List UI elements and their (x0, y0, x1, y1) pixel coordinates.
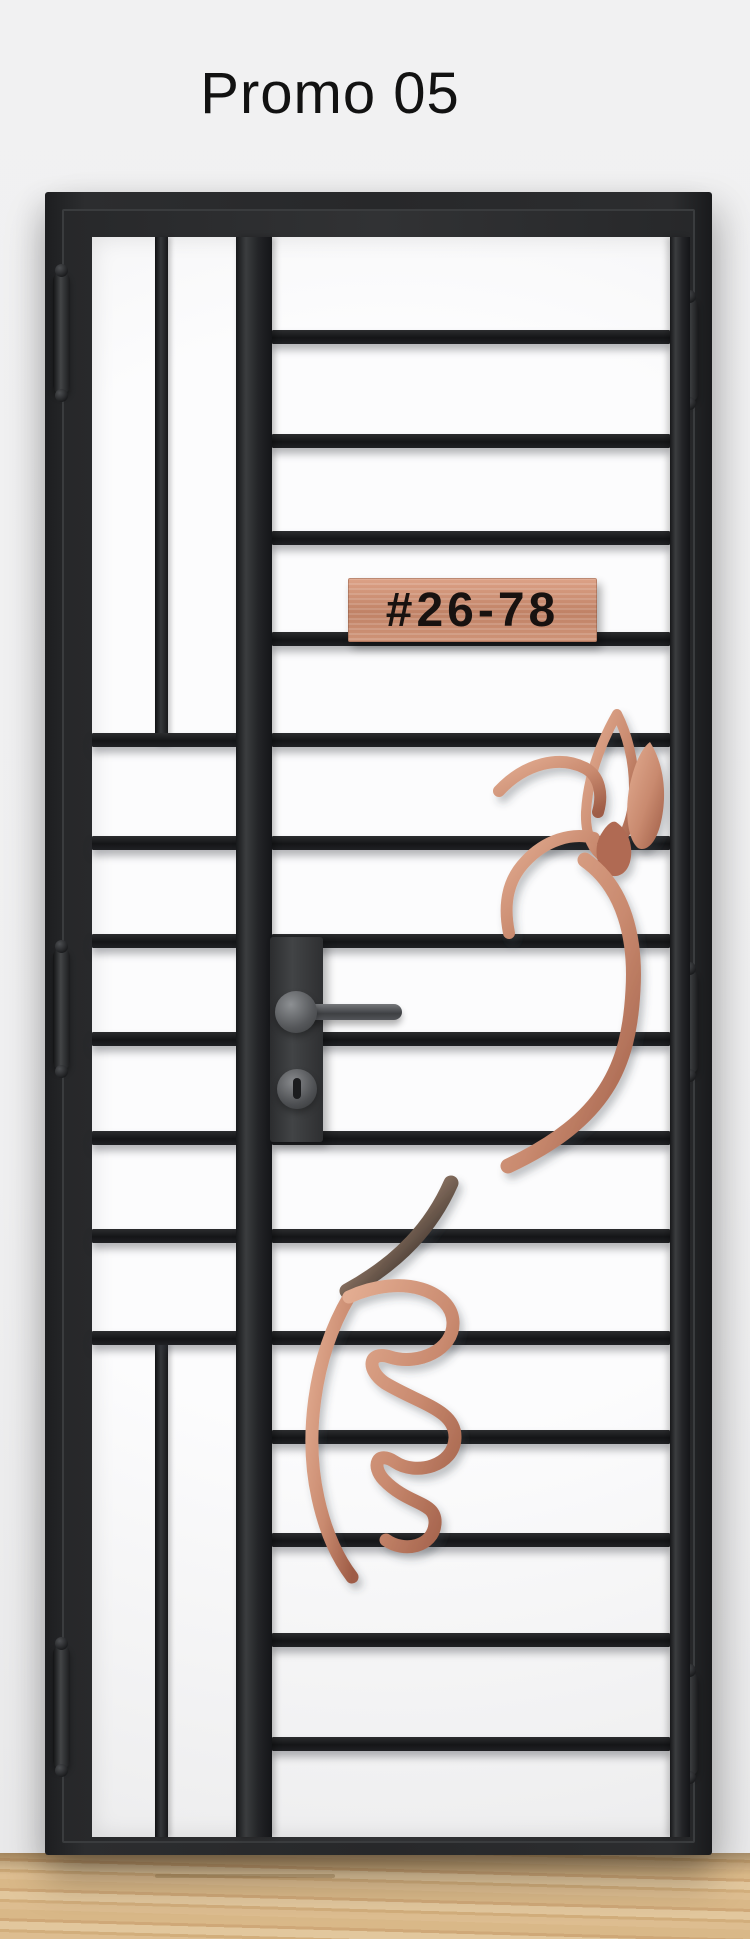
gate-bar (92, 1131, 240, 1145)
gate-bar (272, 1229, 670, 1243)
keyhole-cylinder (277, 1069, 317, 1109)
gate-bar (272, 531, 670, 545)
gate-bar (272, 836, 670, 850)
promo-title: Promo 05 (0, 60, 705, 127)
scene: { "page": { "title": "Promo 05", "wall_c… (0, 0, 750, 1939)
left-panel-divider-bar (155, 1344, 168, 1837)
gate-bar (272, 1430, 670, 1444)
wood-floor (0, 1853, 750, 1939)
gate-bar (272, 1331, 670, 1345)
gate-bar (272, 934, 670, 948)
gate-bar (272, 733, 670, 747)
gate-bar (92, 1331, 240, 1345)
lock-plate (270, 937, 323, 1142)
door-leaf-right-stile (670, 237, 690, 1837)
hinge (53, 1645, 70, 1769)
hinge (53, 948, 70, 1070)
gate-bar (92, 836, 240, 850)
gate-bar (92, 1229, 240, 1243)
handle-rose (275, 991, 317, 1033)
left-panel-divider-bar (155, 237, 168, 746)
unit-number-text: #26-78 (386, 583, 559, 638)
gate-bar (92, 733, 240, 747)
gate-bar (272, 1131, 670, 1145)
gate-bar (272, 1737, 670, 1751)
unit-number-plate: #26-78 (348, 578, 597, 642)
floor-plank-seam (155, 1874, 335, 1878)
door-leaf-left-stile (236, 237, 272, 1837)
gate-bar (272, 434, 670, 448)
gate-bar (272, 330, 670, 344)
gate-bar (92, 1032, 240, 1046)
gate-bar (92, 934, 240, 948)
gate-bar (272, 1032, 670, 1046)
hinge (53, 272, 70, 394)
gate-bar (272, 1633, 670, 1647)
gate-bar (272, 1533, 670, 1547)
metal-gate-door: #26-78 (45, 192, 712, 1855)
